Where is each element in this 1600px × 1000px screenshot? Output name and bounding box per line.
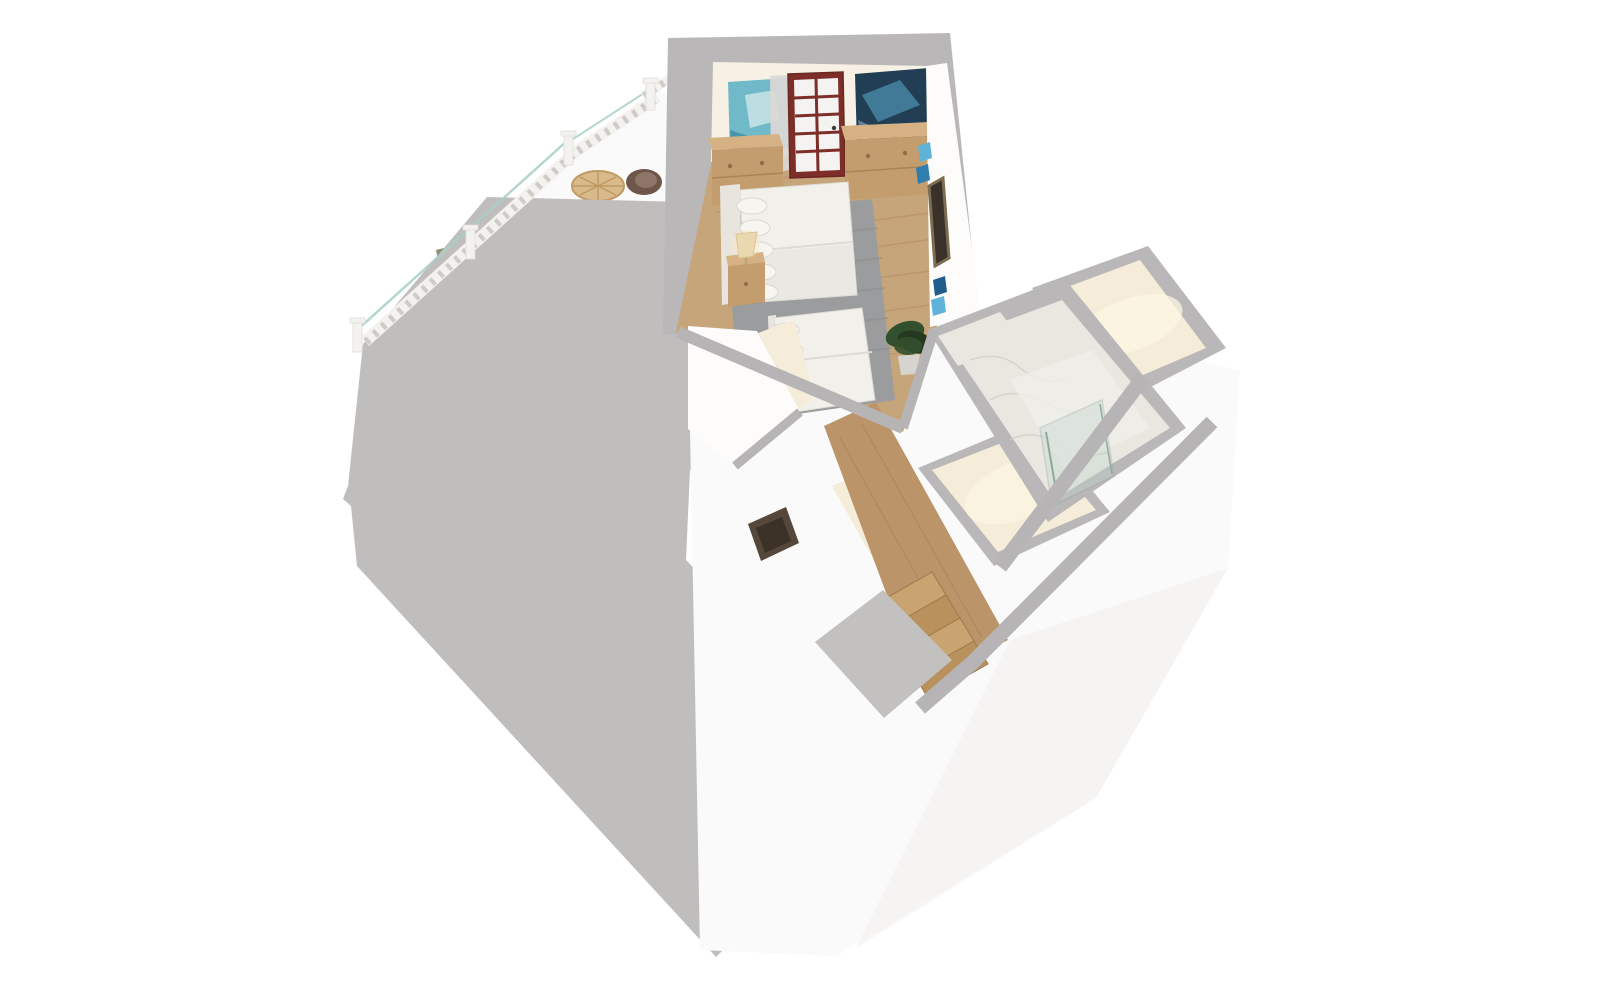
railing-post-cap bbox=[643, 78, 658, 83]
drawer-knob bbox=[760, 161, 764, 165]
plant-leaf bbox=[894, 337, 922, 355]
door-mullion bbox=[794, 96, 839, 98]
railing-post-cap bbox=[350, 318, 365, 323]
door-mullion-vertical bbox=[816, 79, 818, 171]
railing-post-cap bbox=[463, 225, 478, 230]
floorplan-svg bbox=[0, 0, 1600, 1000]
railing-post-cap bbox=[561, 131, 576, 136]
door-mullion bbox=[795, 114, 839, 116]
door-mullion bbox=[796, 150, 840, 152]
door-handle bbox=[832, 126, 836, 130]
nightstand-knob bbox=[744, 282, 748, 286]
railing-post bbox=[466, 229, 475, 259]
railing-post bbox=[353, 322, 362, 352]
railing-post bbox=[646, 82, 655, 110]
door-mullion bbox=[795, 132, 840, 134]
drawer-knob bbox=[866, 154, 870, 158]
railing-post bbox=[564, 135, 573, 165]
pillow bbox=[737, 198, 767, 214]
drawer-knob bbox=[728, 164, 732, 168]
patio-chair-brown-seat bbox=[635, 172, 657, 188]
drawer-knob bbox=[903, 151, 907, 155]
floorplan-render bbox=[0, 0, 1600, 1000]
